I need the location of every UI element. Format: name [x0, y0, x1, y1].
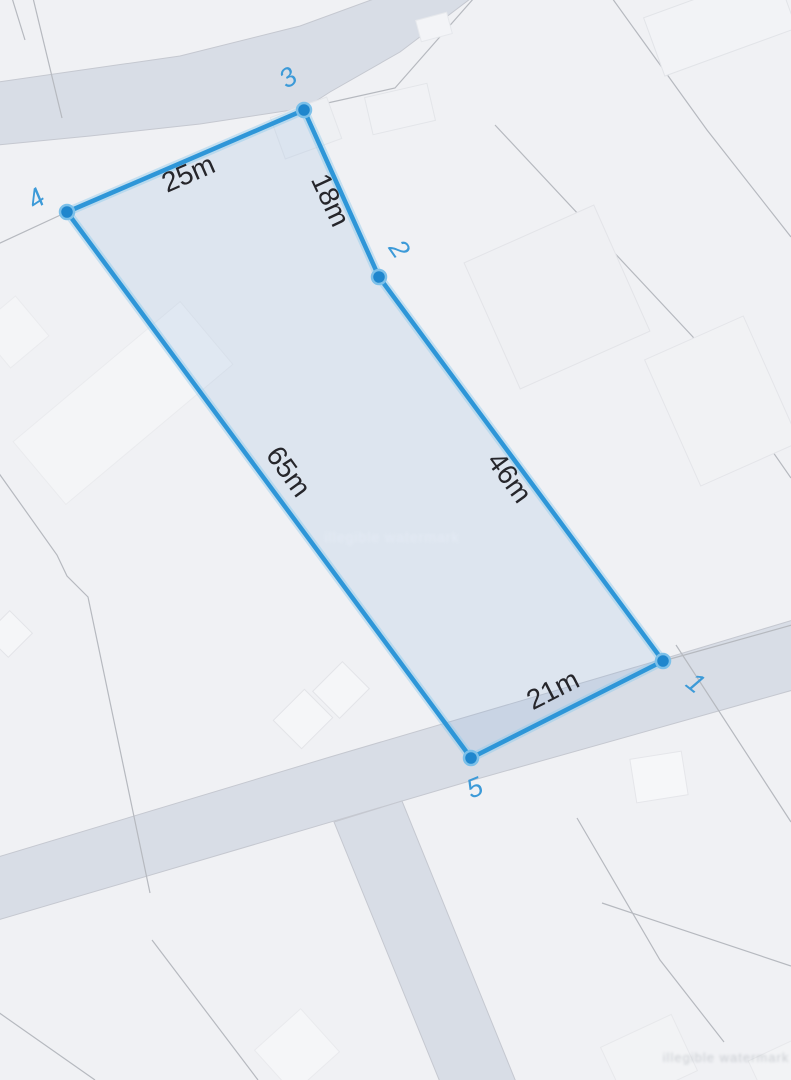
map-canvas[interactable]: illegible watermark 25m 18m 46m 21m 65m … [0, 0, 791, 1080]
vertex-handle-5[interactable] [464, 751, 478, 765]
watermark-bottom-right: illegible watermark [663, 1050, 790, 1065]
vertex-handle-4[interactable] [60, 205, 74, 219]
vertex-handle-2[interactable] [372, 270, 386, 284]
vertex-handle-1[interactable] [656, 654, 670, 668]
map-screenshot: illegible watermark 25m 18m 46m 21m 65m … [0, 0, 791, 1080]
building-footprint [630, 751, 688, 803]
vertex-handle-3[interactable] [297, 103, 311, 117]
